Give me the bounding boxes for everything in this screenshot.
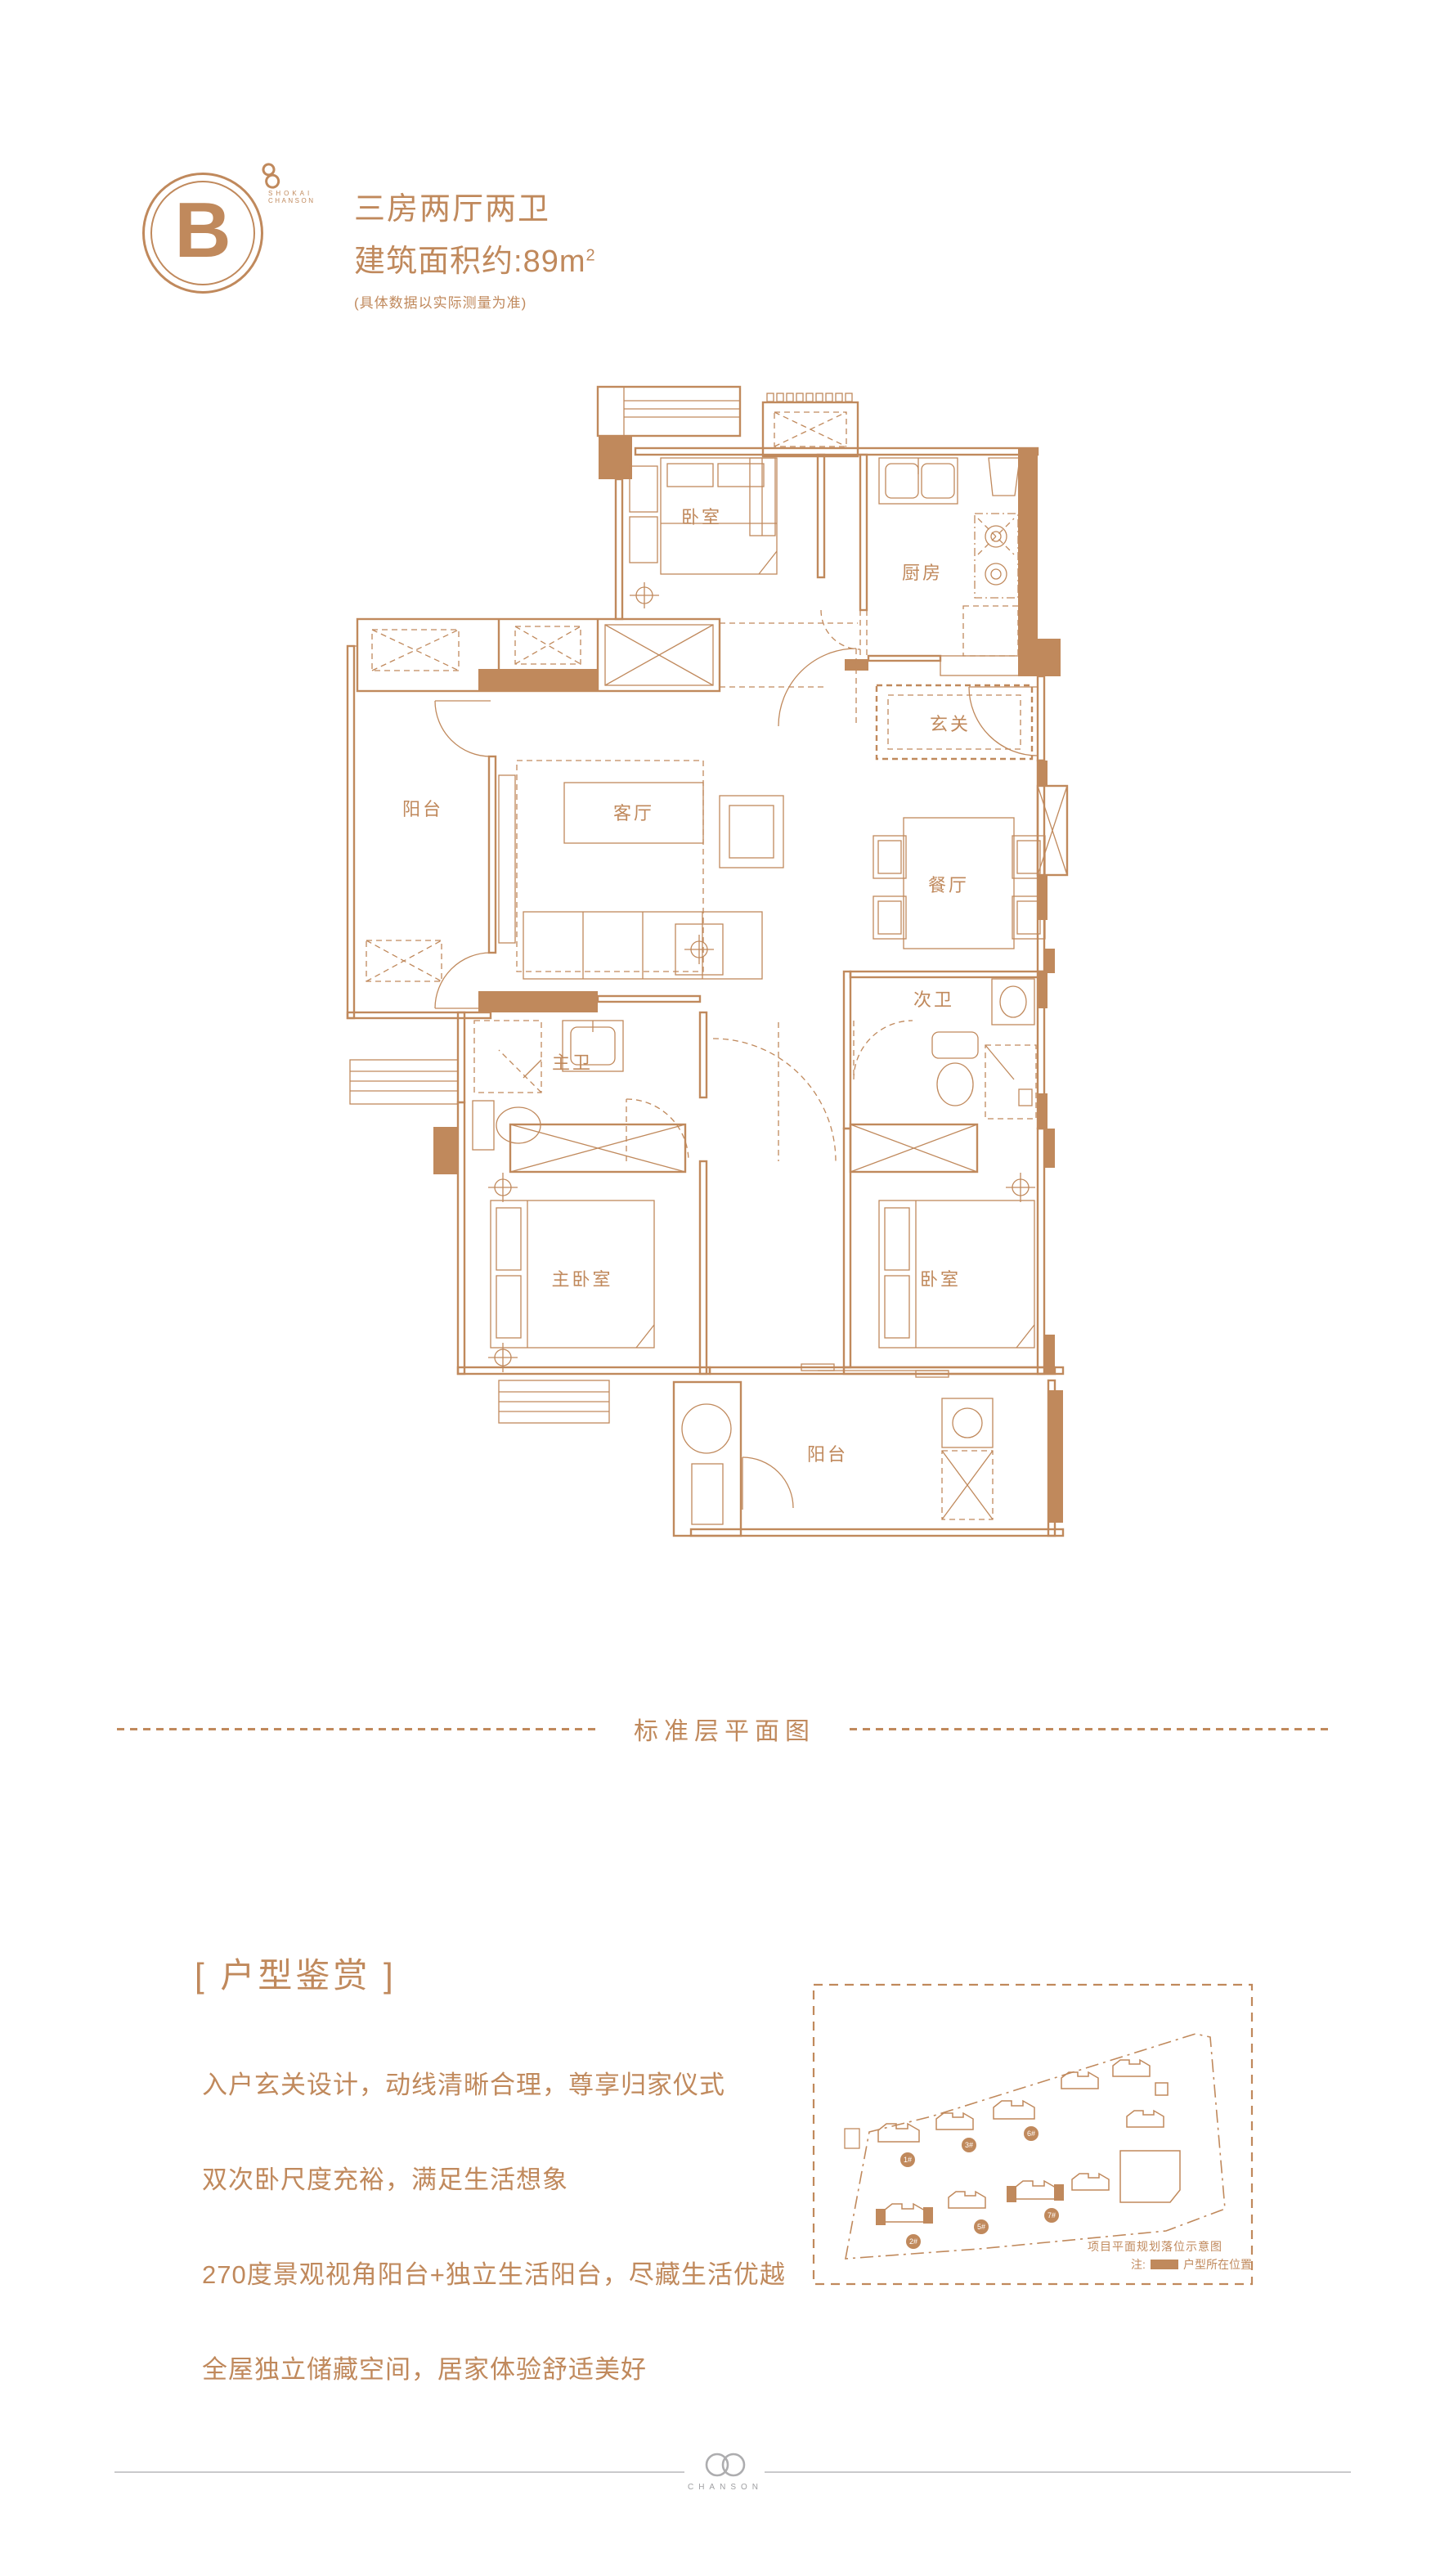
master-bath: 主卫 xyxy=(458,991,707,1374)
north-wall xyxy=(635,448,1038,455)
page-title: 三房两厅两卫 xyxy=(354,183,596,228)
balcony-left: 阳台 xyxy=(348,646,491,1018)
brand-mark: SHOKAI CHANSON xyxy=(255,162,345,204)
header-titles: 三房两厅两卫 建筑面积约:89m2 (具体数据以实际测量为准) xyxy=(354,183,596,312)
corridor xyxy=(713,1022,836,1161)
ac-platform-band xyxy=(357,619,858,726)
room-label-balcony-left: 阳台 xyxy=(402,799,443,819)
svg-text:2#: 2# xyxy=(909,2237,917,2246)
legend-prefix: 注: xyxy=(1131,2258,1146,2271)
site-boundary xyxy=(846,2034,1225,2259)
svg-text:3#: 3# xyxy=(965,2141,973,2149)
room-label-foyer: 玄关 xyxy=(930,714,971,734)
bay-window-top xyxy=(598,387,740,479)
site-plan-caption: 项目平面规划落位示意图 xyxy=(1088,2240,1222,2253)
floorplan-brochure-page: B SHOKAI CHANSON 三房两厅两卫 建筑面积约:89m2 (具体数据… xyxy=(0,0,1449,2576)
unit-type-badge: B xyxy=(142,173,263,294)
infinity-logo-icon xyxy=(256,159,285,192)
brand-name-bottom: CHANSON xyxy=(268,197,345,204)
chanson-logo-icon xyxy=(697,2448,754,2482)
site-building-2-highlighted xyxy=(876,2204,933,2225)
site-small-building xyxy=(845,2129,859,2148)
legend-swatch xyxy=(1151,2260,1178,2269)
master-bedroom: 主卧室 xyxy=(458,1102,710,1423)
area-line: 建筑面积约:89m2 xyxy=(354,236,596,280)
divider-dash-right xyxy=(850,1728,1332,1730)
site-plan: 1# 3# 6# 2# 5# 7# 项目平面规划落位示意图 注: 户型所在位置 xyxy=(812,1983,1254,2286)
legend-label: 户型所在位置 xyxy=(1183,2258,1252,2271)
feature-item: 270度景观视角阳台+独立生活阳台，尽藏生活优越 xyxy=(202,2254,786,2291)
badge-inner-ring: B xyxy=(150,181,255,285)
divider-dash-left xyxy=(117,1728,599,1730)
svg-text:6#: 6# xyxy=(1027,2129,1035,2138)
site-building-7-highlighted xyxy=(1007,2181,1064,2202)
svg-text:1#: 1# xyxy=(904,2156,912,2164)
unit-type-letter: B xyxy=(174,191,231,270)
ac-platform-top xyxy=(763,393,858,456)
features-heading: [ 户型鉴赏 ] xyxy=(195,1948,397,1998)
room-label-bedroom-right: 卧室 xyxy=(920,1269,961,1290)
room-label-balcony-bottom: 阳台 xyxy=(807,1444,848,1465)
feature-item: 全屋独立储藏空间，居家体验舒适美好 xyxy=(202,2349,786,2385)
footer-line-left xyxy=(114,2471,684,2473)
kitchen: 厨房 xyxy=(821,448,1061,676)
lamp-symbol xyxy=(1006,1173,1035,1202)
floor-plan: 卧室 厨房 xyxy=(343,352,1079,1554)
bedroom-right: 卧室 xyxy=(844,1129,1055,1374)
disclaimer: (具体数据以实际测量为准) xyxy=(354,291,596,312)
room-label-master-bath: 主卫 xyxy=(552,1052,593,1073)
site-plan-drawing: 1# 3# 6# 2# 5# 7# 项目平面规划落位示意图 注: 户型所在位置 xyxy=(812,1983,1254,2286)
floor-plan-drawing: 卧室 厨房 xyxy=(343,352,1079,1554)
footer-line-right xyxy=(765,2471,1351,2473)
svg-text:5#: 5# xyxy=(977,2223,985,2231)
brand-name-top: SHOKAI xyxy=(268,190,345,197)
room-label-master-bedroom: 主卧室 xyxy=(551,1269,612,1290)
footer: CHANSON xyxy=(0,2445,1449,2511)
site-building-badges: 1# 3# 6# 2# 5# 7# xyxy=(900,2126,1059,2249)
room-label-dining: 餐厅 xyxy=(928,875,969,895)
lamp-symbol xyxy=(630,582,659,608)
section-divider: 标准层平面图 xyxy=(0,1712,1449,1745)
room-label-living: 客厅 xyxy=(613,803,654,824)
divider-label: 标准层平面图 xyxy=(634,1711,815,1747)
living-room: 客厅 xyxy=(489,756,783,979)
dining-room: 餐厅 xyxy=(873,761,1067,973)
feature-item: 双次卧尺度充裕，满足生活想象 xyxy=(202,2159,786,2196)
second-bath: 次卫 xyxy=(844,972,1047,1129)
wardrobes xyxy=(510,1124,977,1172)
features-list: 入户玄关设计，动线清晰合理，尊享归家仪式 双次卧尺度充裕，满足生活想象 270度… xyxy=(202,2064,786,2444)
bay-window-west xyxy=(350,1060,458,1174)
footer-brand: CHANSON xyxy=(664,2483,787,2492)
room-label-bedroom-top: 卧室 xyxy=(681,507,722,527)
room-label-second-bath: 次卫 xyxy=(913,990,954,1010)
foyer: 玄关 xyxy=(877,676,1044,761)
feature-item: 入户玄关设计，动线清晰合理，尊享归家仪式 xyxy=(202,2064,786,2101)
room-label-kitchen: 厨房 xyxy=(902,563,943,583)
balcony-bottom: 阳台 xyxy=(674,1364,1063,1536)
lamp-symbol xyxy=(684,935,714,964)
svg-text:7#: 7# xyxy=(1047,2211,1056,2219)
bedroom-top: 卧室 xyxy=(616,455,824,619)
lamp-symbol xyxy=(488,1173,518,1202)
